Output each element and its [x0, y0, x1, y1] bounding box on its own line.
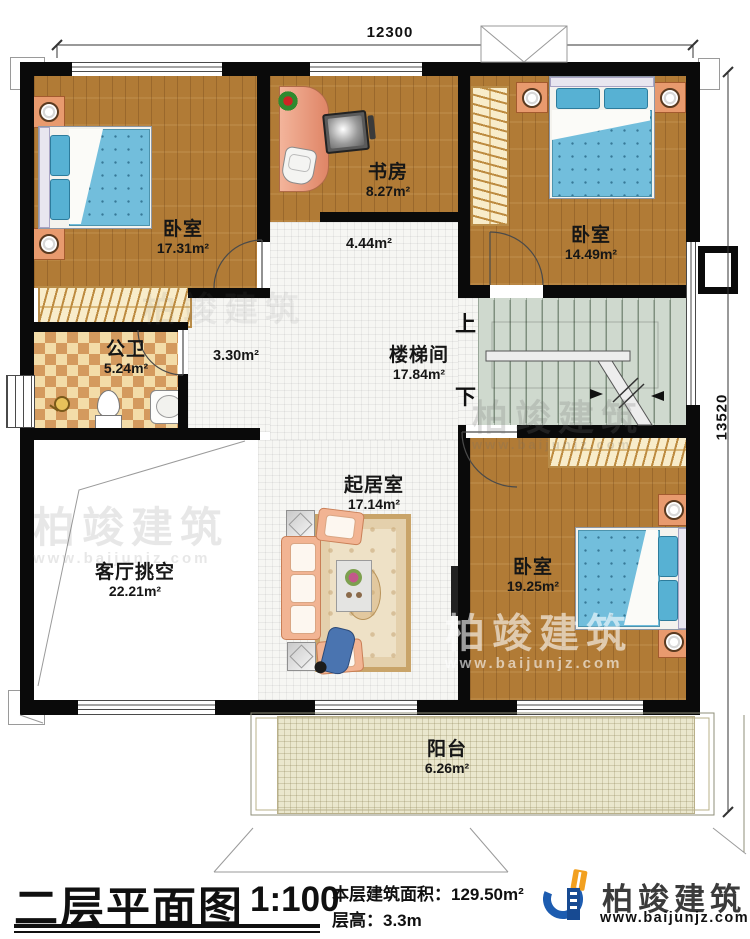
room-label-stairwell: 楼梯间17.84m²	[389, 346, 449, 382]
room-label-bedroom-3: 卧室19.25m²	[507, 558, 559, 594]
balcony-railing	[251, 713, 744, 852]
room-label-study: 书房8.27m²	[366, 163, 410, 199]
scale-label: 1:100	[250, 880, 340, 920]
area-label-corridor: 3.30m²	[213, 348, 259, 364]
floor-area-label: 本层建筑面积：	[332, 885, 451, 904]
floor-plan-page: 柏竣建筑 www.baijunjz.com 柏竣建筑 www.baijunjz.…	[0, 0, 750, 939]
floor-area-value: 129.50m²	[451, 885, 524, 904]
stair-down-label: 下	[455, 381, 476, 411]
stair-up-label: 上	[455, 308, 476, 338]
area-label-hall: 4.44m²	[346, 236, 392, 252]
title-underline	[14, 924, 320, 928]
dimension-width: 12300	[367, 24, 414, 41]
brand-logo-icon	[543, 866, 595, 928]
roof-eave-lines	[20, 715, 746, 872]
floor-height-info: 层高：3.3m	[332, 906, 422, 931]
stair-arrow	[651, 391, 664, 401]
linework-overlay	[0, 0, 750, 939]
floor-height-value: 3.3m	[383, 911, 422, 930]
chimney-outline	[481, 26, 567, 62]
room-label-living: 起居室17.14m²	[344, 476, 404, 512]
watermark: 柏竣建筑 www.baijunjz.com	[33, 505, 229, 568]
dimension-line-top	[52, 40, 698, 58]
dimension-height: 13520	[714, 394, 731, 441]
room-label-balcony: 阳台6.26m²	[425, 740, 469, 776]
room-label-void: 客厅挑空22.21m²	[95, 563, 175, 599]
watermark: 柏竣建筑	[142, 292, 306, 329]
title-underline-2	[14, 931, 320, 933]
room-label-bedroom-1: 卧室17.31m²	[157, 220, 209, 256]
floor-area-info: 本层建筑面积：129.50m²	[332, 880, 524, 905]
stair-handrail	[486, 351, 630, 361]
dimension-line-right	[723, 67, 733, 817]
brand-website: www.baijunjz.com	[600, 910, 749, 926]
watermark: 柏竣建筑 www.baijunjz.com	[445, 612, 633, 673]
watermark: 柏竣建筑 www.baijunjz.com	[472, 398, 644, 452]
room-label-bedroom-2: 卧室14.49m²	[565, 226, 617, 262]
floor-height-label: 层高：	[332, 911, 383, 930]
room-label-bathroom: 公卫5.24m²	[104, 340, 148, 376]
